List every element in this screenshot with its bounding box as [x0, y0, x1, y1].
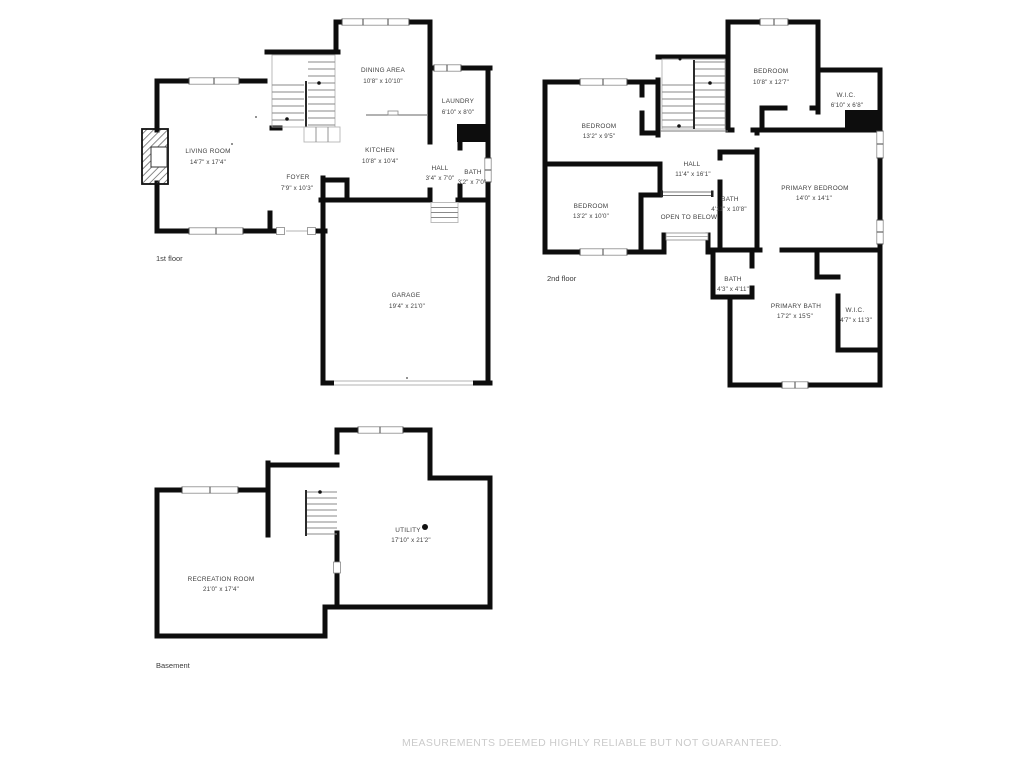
room-label-recreation-room: RECREATION ROOM [188, 576, 255, 583]
room-label-bath: BATH [464, 169, 482, 176]
fixture-dot [406, 377, 408, 379]
room-dims-kitchen: 10'8" x 10'4" [362, 158, 398, 165]
second-floor-stairs [660, 58, 728, 132]
room-dims-living-room: 14'7" x 17'4" [190, 159, 226, 166]
first-floor-plan: DINING AREA 10'8" x 10'10" LAUNDRY 6'10"… [142, 19, 491, 387]
window-laundry [434, 65, 461, 71]
room-dims-foyer: 7'9" x 10'3" [281, 185, 313, 192]
room-label-wic-top: W.I.C. [837, 92, 856, 99]
room-dims-bath: 3'2" x 7'0" [458, 179, 487, 186]
room-label-bedroom-upper-left: BEDROOM [582, 123, 617, 130]
room-label-living-room: LIVING ROOM [185, 148, 230, 155]
floor-plan-page: DINING AREA 10'8" x 10'10" LAUNDRY 6'10"… [0, 0, 1024, 768]
window-primary-right-lower [877, 220, 883, 244]
basement-walls [157, 430, 490, 636]
floor-plan-canvas: DINING AREA 10'8" x 10'10" LAUNDRY 6'10"… [0, 0, 1024, 768]
room-dims-laundry: 6'10" x 8'0" [442, 109, 474, 116]
room-dims-hall-second: 11'4" x 16'1" [675, 171, 710, 178]
room-label-bedroom-lower-left: BEDROOM [574, 203, 609, 210]
basement-stairs [306, 490, 337, 536]
room-label-open-to-below: OPEN TO BELOW [661, 214, 718, 221]
room-label-kitchen: KITCHEN [365, 147, 395, 154]
window-living-bottom [189, 228, 243, 234]
window-dining [342, 19, 409, 25]
room-label-primary-bedroom: PRIMARY BEDROOM [781, 185, 848, 192]
second-floor-plan: BEDROOM 10'8" x 12'7" W.I.C. 6'10" x 6'8… [545, 19, 883, 388]
room-label-bedroom-top: BEDROOM [754, 68, 789, 75]
room-label-utility: UTILITY [395, 527, 421, 534]
room-label-bath-upper: BATH [721, 196, 739, 203]
floor-label-second: 2nd floor [547, 274, 577, 283]
garage-door [334, 379, 473, 387]
disclaimer-text: MEASUREMENTS DEEMED HIGHLY RELIABLE BUT … [402, 737, 782, 749]
laundry-chase [457, 124, 490, 142]
room-label-foyer: FOYER [286, 174, 309, 181]
window-primary-right-upper [877, 131, 883, 158]
room-label-laundry: LAUNDRY [442, 98, 475, 105]
window-bedroom-top [760, 19, 788, 25]
room-dims-bedroom-top: 10'8" x 12'7" [753, 79, 789, 86]
room-label-garage: GARAGE [392, 292, 421, 299]
room-label-hall: HALL [432, 165, 449, 172]
room-dims-primary-bedroom: 14'0" x 14'1" [796, 195, 832, 202]
basement-plan: RECREATION ROOM 21'0" x 17'4" UTILITY 17… [156, 427, 490, 670]
room-dims-wic-top: 6'10" x 6'8" [831, 102, 863, 109]
door-threshold [334, 562, 341, 573]
floor-label-first: 1st floor [156, 254, 183, 263]
window-recreation [182, 487, 238, 493]
window-bedroom-lower-left [580, 249, 627, 255]
room-dims-bedroom-upper-left: 13'2" x 9'5" [583, 133, 615, 140]
window-utility [358, 427, 403, 433]
fixture-dot [231, 143, 233, 145]
room-label-bath-small: BATH [724, 276, 742, 283]
room-label-hall-second: HALL [684, 161, 701, 168]
room-dims-primary-bath: 17'2" x 15'5" [777, 313, 813, 320]
room-dims-bath-upper: 4'11" x 10'8" [711, 206, 746, 213]
wic-chase [845, 110, 880, 132]
room-label-wic-lower: W.I.C. [846, 307, 865, 314]
room-dims-dining-area: 10'8" x 10'10" [363, 78, 402, 85]
room-label-primary-bath: PRIMARY BATH [771, 303, 821, 310]
room-dims-wic-lower: 4'7" x 11'3" [840, 317, 872, 324]
basement-windows [182, 427, 403, 493]
room-dims-recreation-room: 21'0" x 17'4" [203, 586, 239, 593]
room-dims-garage: 19'4" x 21'0" [389, 303, 425, 310]
utility-fixture-dot [422, 524, 428, 530]
window-primary-bath-bottom [782, 382, 808, 388]
garage-steps [431, 203, 458, 223]
room-dims-bath-small: 4'3" x 4'11" [717, 286, 749, 293]
room-label-dining-area: DINING AREA [361, 67, 405, 74]
fireplace-icon [142, 129, 168, 184]
floor-label-basement: Basement [156, 661, 191, 670]
kitchen-counter [366, 111, 427, 115]
fixture-dot [255, 116, 257, 118]
room-dims-bedroom-lower-left: 13'2" x 10'0" [573, 213, 609, 220]
room-dims-hall: 3'4" x 7'0" [426, 175, 455, 182]
window-living-top [189, 78, 239, 84]
room-dims-utility: 17'10" x 21'2" [391, 537, 430, 544]
window-bedroom-upper-left [580, 79, 627, 85]
front-door [277, 227, 316, 235]
